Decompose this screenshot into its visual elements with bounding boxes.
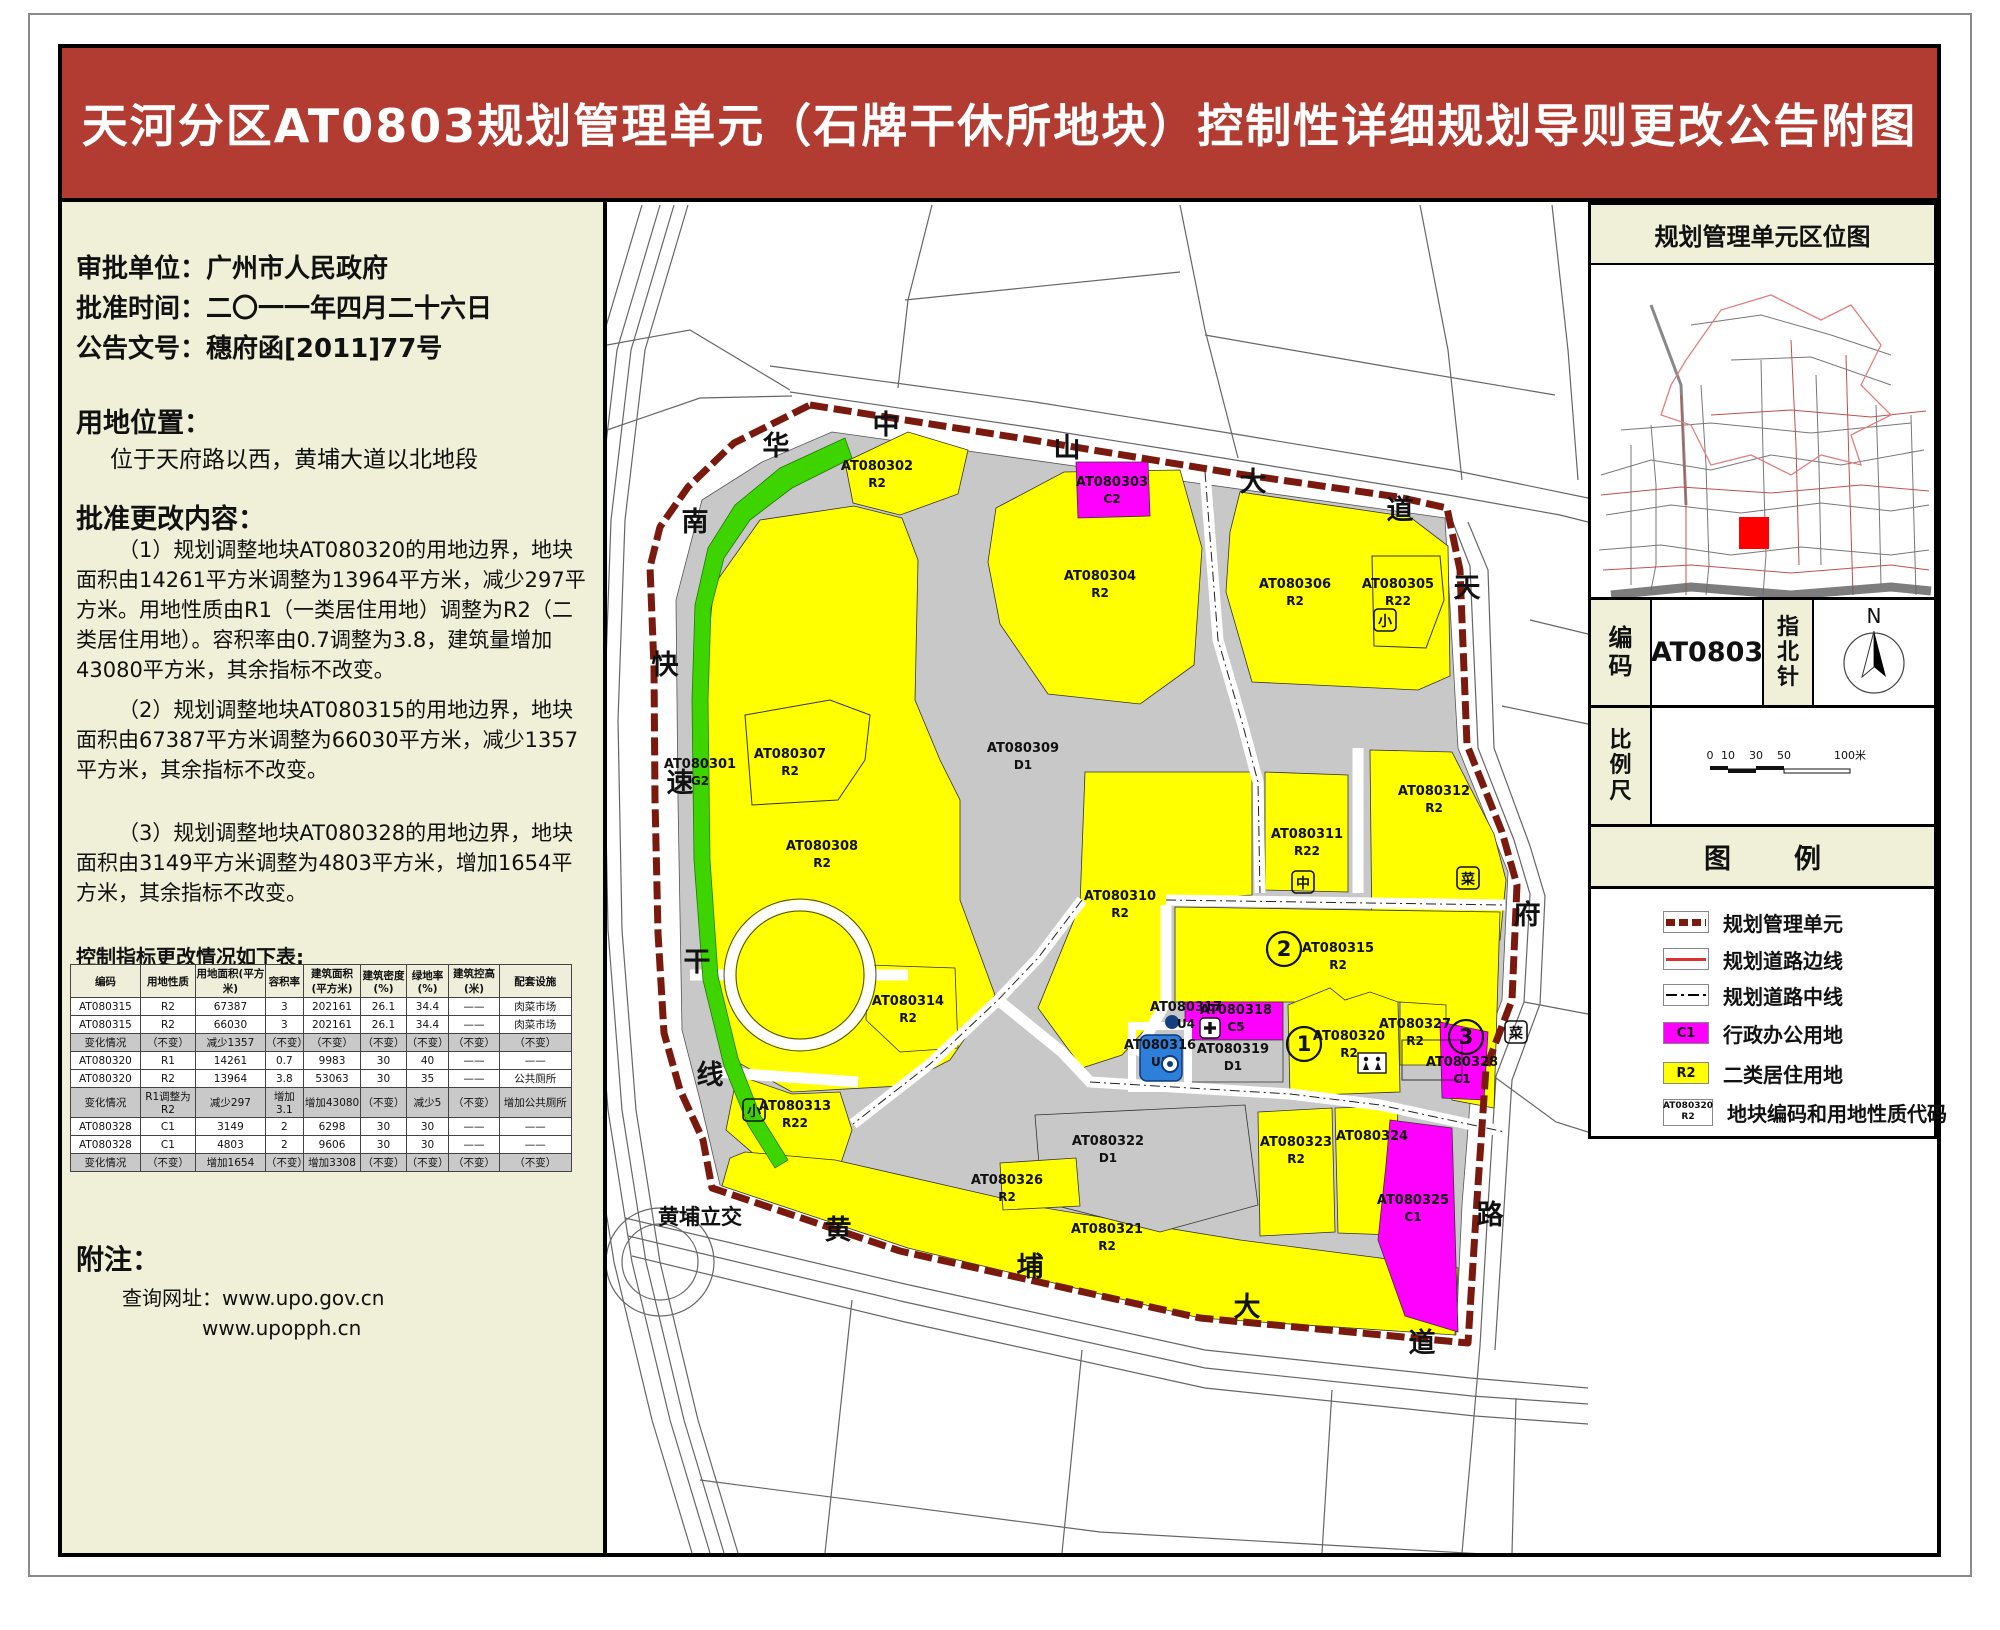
legend-swatch-parcel-code: AT080320R2 bbox=[1663, 1099, 1713, 1126]
parcel-label: AT080321 bbox=[1071, 1222, 1143, 1237]
title-bar: 天河分区AT0803规划管理单元（石牌干休所地块）控制性详细规划导则更改公告附图 bbox=[62, 48, 1937, 202]
parcel-type-label: R2 bbox=[1111, 906, 1129, 920]
road-label: 天 bbox=[1454, 573, 1481, 604]
table-header: 编码 bbox=[71, 965, 141, 998]
table-row: 变化情况（不变）增加1654（不变）增加3308（不变）（不变）（不变）（不变） bbox=[71, 1154, 572, 1172]
table-row: 变化情况（不变）减少1357（不变）（不变）（不变）（不变）（不变）（不变） bbox=[71, 1034, 572, 1052]
parcel-type-label: U4 bbox=[1177, 1017, 1195, 1031]
parcel-label: AT080303 bbox=[1076, 475, 1148, 490]
location-map-box: 规划管理单元区位图 bbox=[1588, 202, 1937, 600]
indicator-table: 编码用地性质用地面积(平方米)容积率建筑面积(平方米)建筑密度(%)绿地率(%)… bbox=[70, 964, 572, 1172]
legend-label: 规划管理单元 bbox=[1723, 908, 1843, 937]
parcel-type-label: R2 bbox=[1286, 594, 1304, 608]
legend-item: R2二类居住用地 bbox=[1591, 1056, 1934, 1090]
parcel-label: AT080328 bbox=[1426, 1055, 1498, 1070]
road-label: 道 bbox=[1387, 494, 1414, 526]
parcel-type-label: D1 bbox=[1224, 1059, 1242, 1073]
wc-icon bbox=[1358, 1053, 1386, 1073]
legend-title: 图 例 bbox=[1588, 824, 1937, 889]
road-label: 大 bbox=[1234, 1292, 1261, 1323]
parcel-type-label: R2 bbox=[1425, 801, 1443, 815]
legend-item: 规划道路边线 bbox=[1591, 942, 1934, 976]
parcel-type-label: D1 bbox=[1099, 1151, 1117, 1165]
table-header: 容积率 bbox=[265, 965, 303, 998]
circled-number: 1 bbox=[1297, 1032, 1312, 1056]
parcel-type-label: R22 bbox=[1294, 844, 1320, 858]
table-header: 建筑控高(米) bbox=[449, 965, 499, 998]
parcel-label: AT080322 bbox=[1072, 1134, 1144, 1149]
location-heading: 用地位置： bbox=[76, 401, 589, 440]
table-row: AT080315R266030320216126.134.4——肉菜市场 bbox=[71, 1016, 572, 1034]
changes-heading: 批准更改内容： bbox=[76, 497, 589, 536]
table-header: 绿地率(%) bbox=[406, 965, 449, 998]
approval-block: 审批单位：广州市人民政府批准时间：二〇一一年四月二十六日公告文号：穗府函[201… bbox=[76, 249, 589, 369]
notes-heading: 附注： bbox=[76, 1238, 589, 1278]
page-title: 天河分区AT0803规划管理单元（石牌干休所地块）控制性详细规划导则更改公告附图 bbox=[82, 90, 1917, 156]
parcel-type-label: R2 bbox=[1340, 1046, 1358, 1060]
parcel-type-label: R2 bbox=[1406, 1034, 1424, 1048]
facility-icon: 菜 bbox=[1508, 1025, 1524, 1042]
planning-map: AT080301G2AT080302R2AT080303C2AT080304R2… bbox=[607, 202, 1588, 1553]
sheet-content: 审批单位：广州市人民政府批准时间：二〇一一年四月二十六日公告文号：穗府函[201… bbox=[62, 202, 1937, 1553]
location-map-title: 规划管理单元区位图 bbox=[1591, 205, 1934, 265]
note-line: 查询网址：www.upo.gov.cn bbox=[76, 1282, 589, 1311]
highlighted-unit-marker bbox=[1739, 517, 1769, 549]
parcel-type-label: R2 bbox=[781, 764, 799, 778]
approval-line: 审批单位：广州市人民政府 bbox=[76, 249, 589, 289]
unit-code: AT0803 bbox=[1652, 600, 1764, 705]
parcel-label: AT080309 bbox=[987, 741, 1059, 756]
road-label: 道 bbox=[1409, 1327, 1436, 1359]
map-key-panel: 规划管理单元区位图 编码 AT0803 指北针 N 比例尺 010305010 bbox=[1588, 202, 1937, 1553]
table-row: AT080328C14803296063030———— bbox=[71, 1136, 572, 1154]
table-row: AT080315R267387320216126.134.4——肉菜市场 bbox=[71, 998, 572, 1016]
table-header: 用地面积(平方米) bbox=[196, 965, 266, 998]
code-row: 编码 AT0803 指北针 N bbox=[1588, 597, 1937, 708]
parcel-label: AT080306 bbox=[1259, 577, 1331, 592]
scale-row: 比例尺 0103050100米 bbox=[1588, 705, 1937, 827]
parcel-label: AT080324 bbox=[1336, 1129, 1408, 1144]
parcel-label: AT080316 bbox=[1124, 1038, 1196, 1053]
svg-text:10: 10 bbox=[1721, 749, 1735, 762]
parcel-label: AT080310 bbox=[1084, 889, 1156, 904]
compass-label: 指北针 bbox=[1764, 600, 1814, 705]
legend-label: 规划道路边线 bbox=[1723, 945, 1843, 974]
indicator-table-wrap: 编码用地性质用地面积(平方米)容积率建筑面积(平方米)建筑密度(%)绿地率(%)… bbox=[70, 964, 589, 1172]
road-label: 府 bbox=[1514, 899, 1541, 931]
parcel-label: AT080315 bbox=[1302, 941, 1374, 956]
change-paragraph: （3）规划调整地块AT080328的用地边界，地块面积由3149平方米调整为48… bbox=[76, 818, 589, 908]
table-header: 建筑面积(平方米) bbox=[303, 965, 361, 998]
road-label: 山 bbox=[1054, 433, 1081, 464]
table-row: AT080320R1142610.799833040———— bbox=[71, 1052, 572, 1070]
parcel-label: AT080318 bbox=[1200, 1003, 1272, 1018]
parcel-type-label: R2 bbox=[1098, 1239, 1116, 1253]
note-line: www.upopph.cn bbox=[76, 1316, 589, 1340]
parcel-type-label: R2 bbox=[1329, 958, 1347, 972]
road-label: 线 bbox=[697, 1060, 724, 1091]
facility-icon: 中 bbox=[1296, 875, 1310, 892]
parcel-type-label: R2 bbox=[813, 856, 831, 870]
legend-swatch-c1: C1 bbox=[1663, 1022, 1709, 1044]
parcel-type-label: G2 bbox=[691, 774, 709, 788]
parcel-label: AT080320 bbox=[1313, 1029, 1385, 1044]
location-text: 位于天府路以西，黄埔大道以北地段 bbox=[76, 440, 589, 474]
legend-swatch-unit-boundary bbox=[1663, 911, 1709, 933]
parcel-label: AT080313 bbox=[759, 1099, 831, 1114]
facility-icon: 小 bbox=[747, 1104, 761, 1120]
table-row: AT080328C13149262983030———— bbox=[71, 1118, 572, 1136]
approval-line: 公告文号：穗府函[2011]77号 bbox=[76, 329, 589, 369]
compass-north-letter: N bbox=[1867, 604, 1882, 628]
legend-label: 地块编码和用地性质代码 bbox=[1727, 1098, 1947, 1127]
parcel-label: AT080312 bbox=[1398, 784, 1470, 799]
legend-swatch-r2: R2 bbox=[1663, 1062, 1709, 1084]
parcel-label: AT080325 bbox=[1377, 1193, 1449, 1208]
approval-line: 批准时间：二〇一一年四月二十六日 bbox=[76, 289, 589, 329]
table-row: AT080320R2139643.8530633035——公共厕所 bbox=[71, 1070, 572, 1088]
road-label: 快 bbox=[652, 650, 680, 681]
table-header: 建筑密度(%) bbox=[361, 965, 406, 998]
facility-icon: 菜 bbox=[1460, 871, 1476, 888]
parcel-type-label: C5 bbox=[1227, 1020, 1244, 1034]
road-label: 大 bbox=[1240, 467, 1267, 498]
parcel-label: AT080305 bbox=[1362, 577, 1434, 592]
legend-label: 行政办公用地 bbox=[1723, 1019, 1843, 1048]
code-label: 编码 bbox=[1591, 600, 1652, 705]
change-paragraph: （1）规划调整地块AT080320的用地边界，地块面积由14261平方米调整为1… bbox=[76, 535, 589, 685]
parcel-type-label: C1 bbox=[1404, 1210, 1421, 1224]
road-label: 黄 bbox=[825, 1215, 852, 1246]
parcel-type-label: R2 bbox=[1091, 586, 1109, 600]
scale-bar: 0103050100米 bbox=[1698, 745, 1888, 787]
legend-box: 规划管理单元规划道路边线规划道路中线C1行政办公用地R2二类居住用地AT0803… bbox=[1588, 886, 1937, 1139]
info-panel: 审批单位：广州市人民政府批准时间：二〇一一年四月二十六日公告文号：穗府函[201… bbox=[62, 202, 607, 1553]
parcel-label: AT080327 bbox=[1379, 1017, 1451, 1032]
svg-text:0: 0 bbox=[1707, 749, 1714, 762]
parcel-label: AT080323 bbox=[1260, 1135, 1332, 1150]
road-label: 速 bbox=[667, 768, 694, 799]
scale-label: 比例尺 bbox=[1591, 708, 1652, 824]
legend-label: 二类居住用地 bbox=[1723, 1059, 1843, 1088]
road-label: 南 bbox=[682, 507, 709, 538]
north-arrow-icon: N bbox=[1814, 603, 1934, 703]
parcel-type-label: R2 bbox=[899, 1011, 917, 1025]
parcel-type-label: C2 bbox=[1103, 492, 1120, 506]
parcel-type-label: R2 bbox=[1287, 1152, 1305, 1166]
svg-text:50: 50 bbox=[1777, 749, 1791, 762]
parcel-label: AT080302 bbox=[841, 459, 913, 474]
parcel-type-label: R22 bbox=[782, 1116, 808, 1130]
svg-text:100米: 100米 bbox=[1834, 749, 1866, 762]
road-label: 华 bbox=[763, 430, 790, 462]
parcel-label: AT080319 bbox=[1197, 1042, 1269, 1057]
legend-item: AT080320R2地块编码和用地性质代码 bbox=[1591, 1095, 1934, 1129]
road-label: 干 bbox=[684, 947, 711, 978]
table-header: 配套设施 bbox=[499, 965, 571, 998]
svg-text:30: 30 bbox=[1749, 749, 1763, 762]
circled-number: 2 bbox=[1277, 937, 1292, 961]
parcel-label: AT080311 bbox=[1271, 827, 1343, 842]
legend-item: 规划管理单元 bbox=[1591, 905, 1934, 939]
parcel-type-label: R2 bbox=[998, 1190, 1016, 1204]
road-label: 埔 bbox=[1017, 1252, 1044, 1283]
legend-label: 规划道路中线 bbox=[1723, 981, 1843, 1010]
parcel-label: AT080307 bbox=[754, 747, 826, 762]
table-row: 变化情况R1调整为R2减少297增加3.1增加43080（不变）减少5（不变）增… bbox=[71, 1088, 572, 1118]
legend-item: C1行政办公用地 bbox=[1591, 1016, 1934, 1050]
parcel-label: AT080314 bbox=[872, 994, 944, 1009]
interchange-label: 黄埔立交 bbox=[658, 1205, 742, 1229]
location-map bbox=[1591, 265, 1934, 599]
parcel-type-label: R22 bbox=[1385, 594, 1411, 608]
road-label: 路 bbox=[1477, 1199, 1505, 1231]
parcel-label: AT080308 bbox=[786, 839, 858, 854]
parcel-label: AT080304 bbox=[1064, 569, 1136, 584]
road-label: 中 bbox=[873, 410, 900, 441]
legend-item: 规划道路中线 bbox=[1591, 978, 1934, 1012]
parcel-label: AT080326 bbox=[971, 1173, 1043, 1188]
planning-map-svg: AT080301G2AT080302R2AT080303C2AT080304R2… bbox=[607, 202, 1588, 1553]
parcel-type-label: R2 bbox=[868, 476, 886, 490]
parcel-type-label: C1 bbox=[1453, 1072, 1470, 1086]
table-header: 用地性质 bbox=[140, 965, 195, 998]
legend-swatch-road-center bbox=[1663, 984, 1709, 1006]
legend-swatch-road-edge bbox=[1663, 948, 1709, 970]
facility-icon: 小 bbox=[1378, 614, 1392, 630]
parcel-type-label: D1 bbox=[1014, 758, 1032, 772]
change-paragraph: （2）规划调整地块AT080315的用地边界，地块面积由67387平方米调整为6… bbox=[76, 695, 589, 785]
circled-number: 3 bbox=[1459, 1025, 1474, 1049]
sheet-frame: 天河分区AT0803规划管理单元（石牌干休所地块）控制性详细规划导则更改公告附图… bbox=[58, 44, 1941, 1557]
